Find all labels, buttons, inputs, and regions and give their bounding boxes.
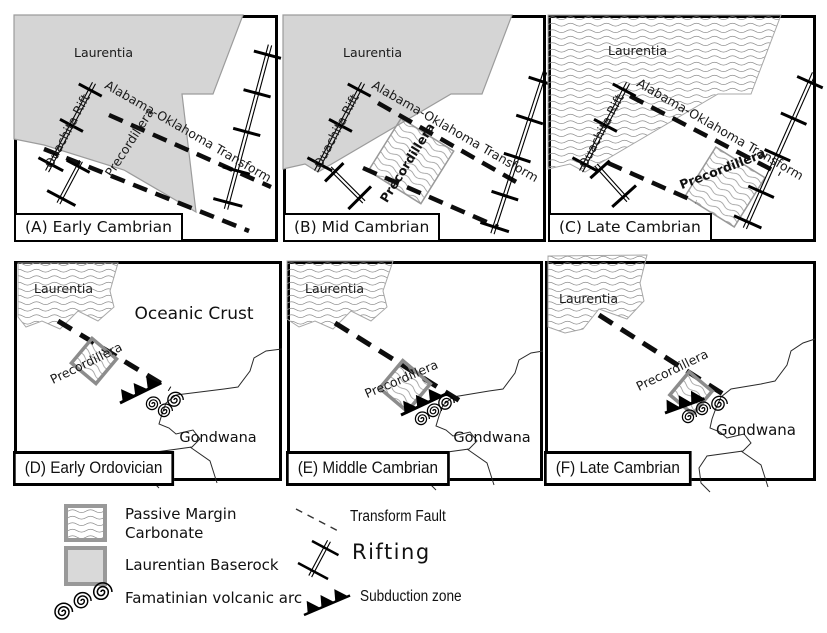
laurentia-label: Laurentia (608, 43, 667, 58)
panel-caption: (A) Early Cambrian (14, 213, 183, 242)
panel-middle-cambrian: Laurentia Precordillera Gondwana (E) Mid… (287, 261, 543, 481)
passive-margin-carbonate-swatch (64, 504, 107, 542)
gondwana-label: Gondwana (716, 421, 796, 439)
volcanic-arc-spiral-icon (712, 396, 727, 410)
tectonic-evolution-figure: Laurentia Ouachita Rift Alabama-Oklahoma… (0, 0, 827, 633)
gondwana-coastline-south (190, 447, 217, 483)
panel-a-drawing: Laurentia Ouachita Rift Alabama-Oklahoma… (14, 15, 278, 242)
laurentia-carbonate-shape (18, 263, 118, 329)
panel-f-drawing: Laurentia Precordillera Gondwana (545, 261, 816, 481)
gondwana-label: Gondwana (179, 430, 256, 446)
panel-c-drawing: Laurentia Ouachita Rift Alabama-Oklahoma… (548, 15, 816, 242)
gondwana-label: Gondwana (453, 430, 530, 446)
transform-fault-legend-line (296, 509, 342, 533)
laurentian-baserock-swatch (64, 546, 107, 586)
panel-caption: (D) Early Ordovician (13, 451, 174, 486)
laurentia-label: Laurentia (74, 45, 133, 60)
panel-caption: (E) Middle Cambrian (286, 451, 450, 486)
volcanic-arc-spiral-icon (415, 412, 429, 425)
panel-early-ordovician: Laurentia Oceanic Crust Precordillera Go… (14, 261, 282, 481)
subduction-zone-label: Subduction zone (360, 587, 462, 606)
panel-late-cambrian-bottom: Laurentia Precordillera Gondwana (F) Lat… (545, 261, 816, 481)
gondwana-coastline-south (741, 451, 768, 487)
panel-caption: (B) Mid Cambrian (283, 213, 440, 242)
panel-caption: (F) Late Cambrian (544, 451, 692, 486)
gondwana-coastline (699, 339, 815, 492)
passive-margin-carbonate-label: Passive Margin Carbonate (125, 505, 260, 543)
laurentia-label: Laurentia (34, 281, 93, 296)
rifting-label: Rifting (352, 543, 431, 562)
panel-e-drawing: Laurentia Precordillera Gondwana (287, 261, 543, 481)
panel-mid-cambrian: Laurentia Ouachita Rift Alabama-Oklahoma… (283, 15, 546, 242)
panel-caption: (C) Late Cambrian (548, 213, 712, 242)
gondwana-coastline-south (467, 449, 494, 485)
transform-fault-label: Transform Fault (350, 507, 446, 526)
panel-b-drawing: Laurentia Ouachita Rift Alabama-Oklahoma… (283, 15, 546, 242)
volcanic-arc-spiral-icon (146, 397, 160, 410)
oceanic-crust-label: Oceanic Crust (134, 304, 253, 324)
panel-late-cambrian-top: Laurentia Ouachita Rift Alabama-Oklahoma… (548, 15, 816, 242)
laurentia-label: Laurentia (305, 281, 364, 296)
laurentian-baserock-label: Laurentian Baserock (125, 556, 345, 575)
laurentia-label: Laurentia (343, 45, 402, 60)
famatinian-volcanic-arc-label: Famatinian volcanic arc (125, 589, 365, 608)
panel-early-cambrian: Laurentia Ouachita Rift Alabama-Oklahoma… (14, 15, 278, 242)
laurentia-label: Laurentia (559, 291, 618, 306)
volcanic-arc-spiral-icon (55, 603, 73, 619)
panel-d-drawing: Laurentia Oceanic Crust Precordillera Go… (14, 261, 282, 481)
volcanic-arc-spiral-icon (74, 593, 91, 608)
